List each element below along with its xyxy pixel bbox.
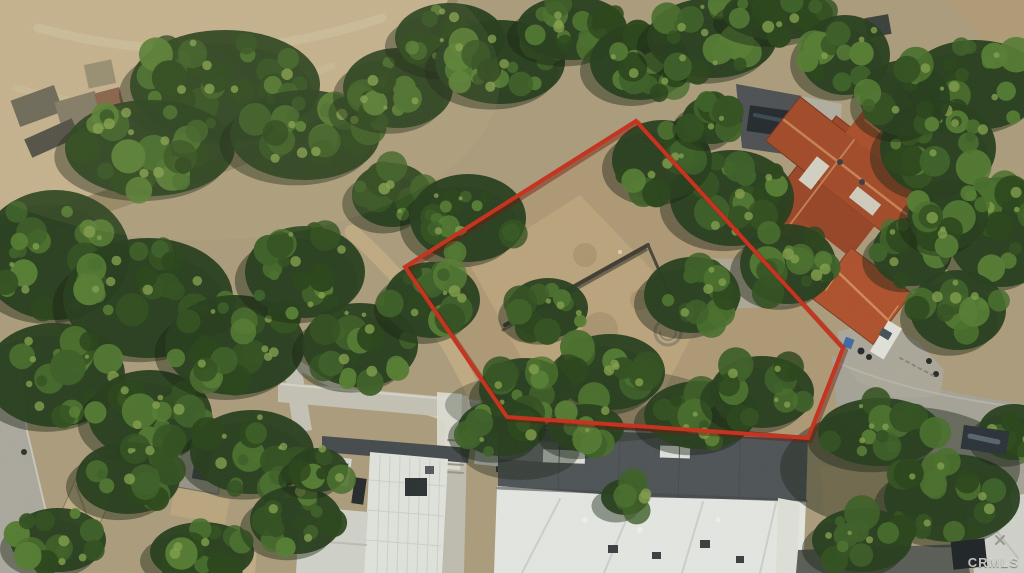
crmls-watermark: CRMLS [968,555,1019,570]
aerial-photo-scene [0,0,1024,573]
color-grade [0,0,1024,573]
aerial-photo: CRMLS [0,0,1024,573]
